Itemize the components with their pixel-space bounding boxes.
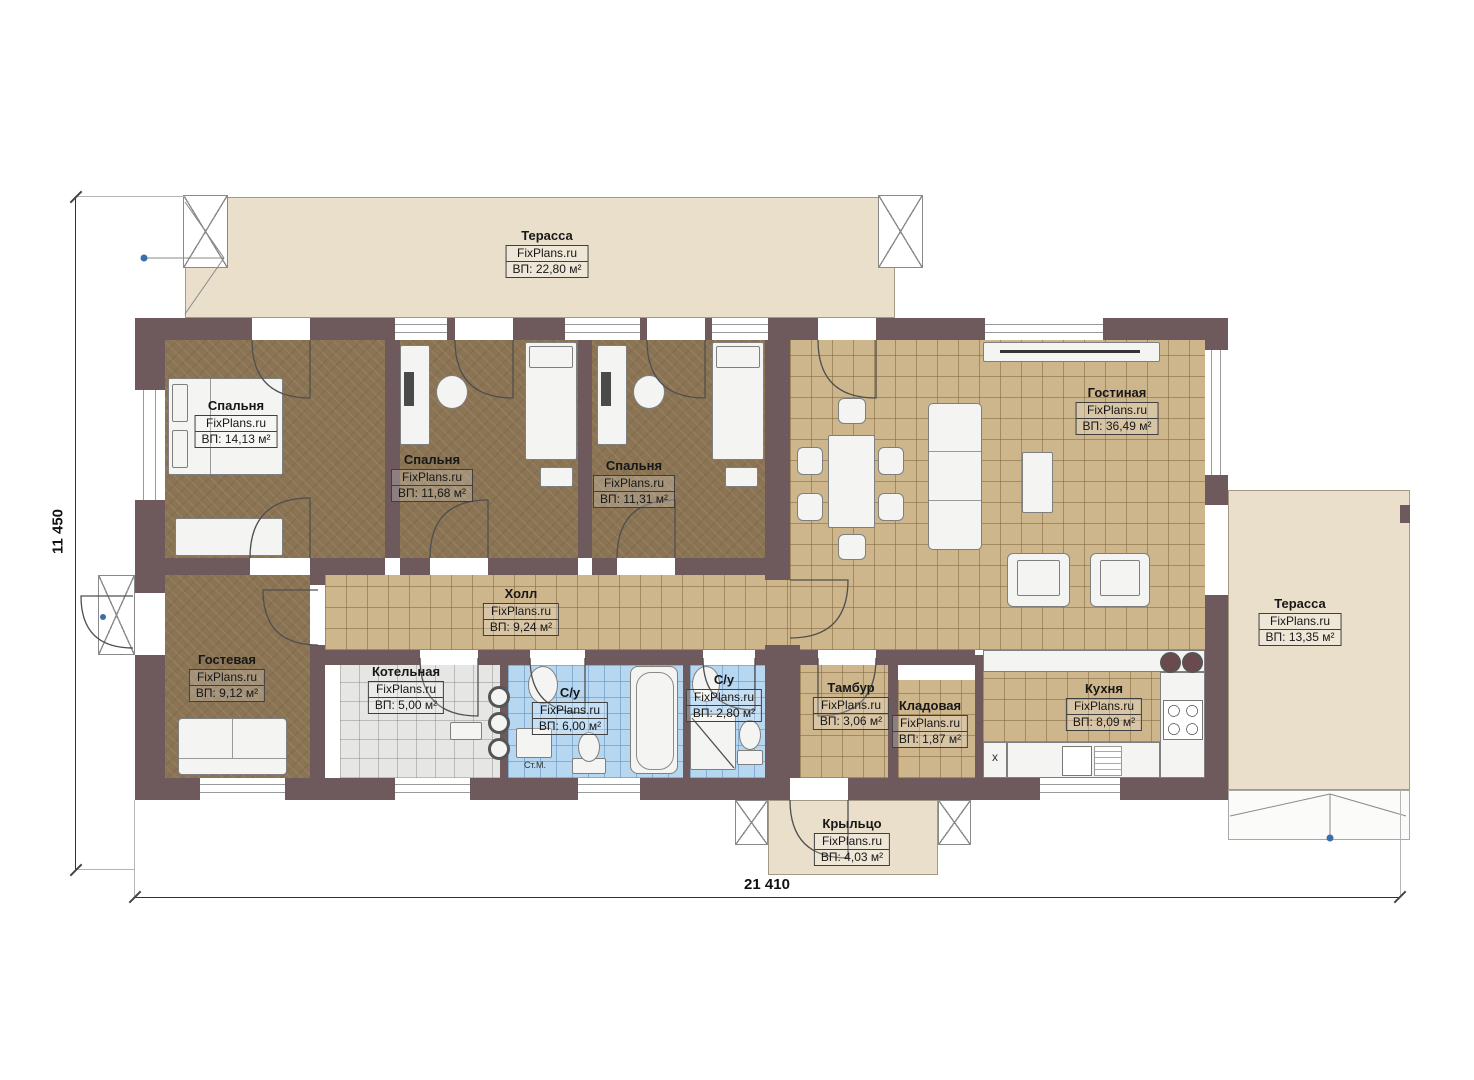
wall-segment bbox=[478, 650, 530, 665]
pillow bbox=[172, 430, 188, 468]
room-area: ВП: 4,03 м² bbox=[815, 850, 889, 865]
room-name: Крыльцо bbox=[814, 816, 890, 831]
toilet-bowl bbox=[578, 732, 600, 762]
room-name: С/у bbox=[532, 685, 608, 700]
room-area: ВП: 5,00 м² bbox=[369, 698, 443, 713]
room-name: Холл bbox=[483, 586, 559, 601]
room-label-bathroom-1: С/у FixPlans.ru ВП: 6,00 м² bbox=[532, 685, 608, 735]
terrace-edge-post bbox=[1400, 505, 1410, 523]
wall-segment bbox=[800, 650, 818, 665]
dimension-line-horizontal bbox=[135, 897, 1400, 898]
brand-text: FixPlans.ru bbox=[196, 416, 277, 432]
wall-segment bbox=[578, 340, 592, 558]
room-label-vestibule: Тамбур FixPlans.ru ВП: 3,06 м² bbox=[813, 680, 889, 730]
room-name: Спальня bbox=[195, 398, 278, 413]
terrace-door-gap bbox=[818, 318, 876, 340]
brand-text: FixPlans.ru bbox=[814, 698, 888, 714]
dining-table bbox=[828, 435, 875, 528]
window-living-wide bbox=[985, 318, 1103, 340]
terrace-right-stair-zone bbox=[1228, 790, 1410, 840]
sofa-arm-line bbox=[232, 719, 233, 759]
room-name: С/у bbox=[686, 672, 762, 687]
brand-text: FixPlans.ru bbox=[507, 246, 588, 262]
room-label-terrace-top: Терасса FixPlans.ru ВП: 22,80 м² bbox=[506, 228, 589, 278]
room-label-bedroom-1: Спальня FixPlans.ru ВП: 14,13 м² bbox=[195, 398, 278, 448]
room-name: Терасса bbox=[1259, 596, 1342, 611]
brand-text: FixPlans.ru bbox=[484, 604, 558, 620]
room-name: Гостиная bbox=[1076, 385, 1159, 400]
terrace-door-gap bbox=[647, 318, 705, 340]
sofa-cushion-line bbox=[929, 451, 981, 452]
brand-text: FixPlans.ru bbox=[1067, 699, 1141, 715]
wall-segment bbox=[165, 558, 250, 575]
brand-text: FixPlans.ru bbox=[369, 682, 443, 698]
marker-dot bbox=[141, 255, 148, 262]
porch-post bbox=[735, 800, 768, 845]
room-area: ВП: 9,12 м² bbox=[190, 686, 264, 701]
dimension-tick bbox=[70, 191, 83, 204]
porch-post bbox=[938, 800, 971, 845]
wall-segment bbox=[675, 558, 765, 575]
bathtub-basin bbox=[636, 672, 674, 770]
armchair-seat bbox=[1017, 560, 1060, 596]
room-label-hall: Холл FixPlans.ru ВП: 9,24 м² bbox=[483, 586, 559, 636]
room-area: ВП: 2,80 м² bbox=[687, 706, 761, 721]
entrance-door-gap bbox=[135, 593, 165, 655]
boiler-equipment bbox=[450, 722, 482, 740]
extension-line bbox=[75, 869, 135, 870]
nightstand bbox=[540, 467, 573, 487]
room-name: Спальня bbox=[593, 458, 675, 473]
dining-chair bbox=[838, 398, 866, 424]
toilet-tank bbox=[737, 750, 763, 765]
wall-segment bbox=[592, 558, 617, 575]
fridge-mark: x bbox=[983, 750, 1007, 764]
sofa-cushion-line bbox=[929, 500, 981, 501]
room-label-terrace-right: Терасса FixPlans.ru ВП: 13,35 м² bbox=[1259, 596, 1342, 646]
room-area: ВП: 22,80 м² bbox=[507, 262, 588, 277]
brand-text: FixPlans.ru bbox=[533, 703, 607, 719]
wall-segment bbox=[488, 558, 578, 575]
boiler-unit bbox=[488, 712, 510, 734]
room-area: ВП: 11,31 м² bbox=[594, 492, 674, 507]
brand-text: FixPlans.ru bbox=[392, 470, 472, 486]
porch-door-gap bbox=[790, 778, 848, 800]
floor-plan: Ст.М. x bbox=[0, 0, 1474, 1080]
wall-segment bbox=[585, 650, 703, 665]
wall-segment bbox=[765, 645, 800, 778]
kitchen-sink-basin bbox=[1160, 652, 1181, 673]
room-label-bathroom-2: С/у FixPlans.ru ВП: 2,80 м² bbox=[686, 672, 762, 722]
room-area: ВП: 1,87 м² bbox=[893, 732, 967, 747]
window bbox=[565, 318, 640, 340]
room-area: ВП: 9,24 м² bbox=[484, 620, 558, 635]
boiler-unit bbox=[488, 738, 510, 760]
brand-text: FixPlans.ru bbox=[815, 834, 889, 850]
wall-segment bbox=[385, 340, 400, 558]
terrace-door-gap bbox=[252, 318, 310, 340]
terrace-door-gap bbox=[455, 318, 513, 340]
brand-text: FixPlans.ru bbox=[687, 690, 761, 706]
room-name: Котельная bbox=[368, 664, 444, 679]
room-name: Терасса bbox=[506, 228, 589, 243]
room-name: Гостевая bbox=[189, 652, 265, 667]
dining-chair bbox=[878, 493, 904, 521]
office-chair bbox=[436, 375, 468, 409]
room-area: ВП: 11,68 м² bbox=[392, 486, 472, 501]
room-name: Кухня bbox=[1066, 681, 1142, 696]
sofa bbox=[928, 403, 982, 550]
extension-line bbox=[75, 196, 185, 197]
brand-text: FixPlans.ru bbox=[594, 476, 674, 492]
dimension-tick bbox=[70, 864, 83, 877]
brand-text: FixPlans.ru bbox=[893, 716, 967, 732]
window bbox=[395, 318, 447, 340]
window bbox=[1040, 778, 1120, 800]
brand-text: FixPlans.ru bbox=[1260, 614, 1341, 630]
monitor bbox=[404, 372, 414, 406]
wall-segment bbox=[400, 558, 430, 575]
wall-segment bbox=[765, 340, 790, 580]
terrace-post bbox=[878, 195, 923, 268]
window bbox=[200, 778, 285, 800]
brand-text: FixPlans.ru bbox=[190, 670, 264, 686]
room-area: ВП: 8,09 м² bbox=[1067, 715, 1141, 730]
room-name: Тамбур bbox=[813, 680, 889, 695]
extension-line bbox=[134, 800, 135, 897]
nightstand bbox=[725, 467, 758, 487]
armchair-seat bbox=[1100, 560, 1140, 596]
wall-segment bbox=[325, 650, 420, 665]
dining-chair bbox=[797, 493, 823, 521]
window bbox=[1205, 350, 1228, 475]
wall-segment bbox=[876, 650, 975, 665]
coffee-table bbox=[1022, 452, 1053, 513]
boiler-unit bbox=[488, 686, 510, 708]
brand-text: FixPlans.ru bbox=[1077, 403, 1158, 419]
window bbox=[135, 390, 165, 500]
dining-chair bbox=[878, 447, 904, 475]
dining-chair bbox=[797, 447, 823, 475]
microwave bbox=[1094, 746, 1122, 776]
office-chair bbox=[633, 375, 665, 409]
room-name: Кладовая bbox=[892, 698, 968, 713]
room-area: ВП: 3,06 м² bbox=[814, 714, 888, 729]
oven bbox=[1062, 746, 1092, 776]
wall-segment bbox=[310, 575, 325, 585]
washing-machine-label: Ст.М. bbox=[517, 760, 553, 770]
pillow bbox=[716, 346, 760, 368]
window bbox=[578, 778, 640, 800]
room-area: ВП: 36,49 м² bbox=[1077, 419, 1158, 434]
room-label-kitchen: Кухня FixPlans.ru ВП: 8,09 м² bbox=[1066, 681, 1142, 731]
room-label-porch: Крыльцо FixPlans.ru ВП: 4,03 м² bbox=[814, 816, 890, 866]
room-label-boiler-room: Котельная FixPlans.ru ВП: 5,00 м² bbox=[368, 664, 444, 714]
wardrobe bbox=[175, 518, 283, 556]
room-label-storage: Кладовая FixPlans.ru ВП: 1,87 м² bbox=[892, 698, 968, 748]
toilet-bowl bbox=[739, 720, 761, 750]
dimension-label-horizontal: 21 410 bbox=[727, 876, 807, 893]
room-name: Спальня bbox=[391, 452, 473, 467]
pillow bbox=[529, 346, 573, 368]
window bbox=[712, 318, 768, 340]
window bbox=[395, 778, 470, 800]
room-area: ВП: 6,00 м² bbox=[533, 719, 607, 734]
tv bbox=[1000, 350, 1140, 353]
extension-line bbox=[1400, 790, 1401, 897]
wall-segment bbox=[310, 645, 325, 778]
corner-shower bbox=[690, 714, 736, 770]
dimension-label-vertical: 11 450 bbox=[50, 504, 67, 560]
pillow bbox=[172, 384, 188, 422]
entrance-step bbox=[98, 575, 135, 655]
room-label-bedroom-2: Спальня FixPlans.ru ВП: 11,68 м² bbox=[391, 452, 473, 502]
wall-segment bbox=[310, 558, 385, 575]
dimension-line-vertical bbox=[75, 197, 76, 870]
dining-chair bbox=[838, 534, 866, 560]
room-area: ВП: 14,13 м² bbox=[196, 432, 277, 447]
room-label-living-room: Гостиная FixPlans.ru ВП: 36,49 м² bbox=[1076, 385, 1159, 435]
room-area: ВП: 13,35 м² bbox=[1260, 630, 1341, 645]
room-label-guest-room: Гостевая FixPlans.ru ВП: 9,12 м² bbox=[189, 652, 265, 702]
room-label-bedroom-3: Спальня FixPlans.ru ВП: 11,31 м² bbox=[593, 458, 675, 508]
kitchen-sink-basin bbox=[1182, 652, 1203, 673]
wall-segment bbox=[975, 655, 983, 778]
terrace-slider-gap bbox=[1205, 505, 1228, 595]
terrace-post bbox=[183, 195, 228, 268]
stove bbox=[1163, 700, 1203, 740]
monitor bbox=[601, 372, 611, 406]
